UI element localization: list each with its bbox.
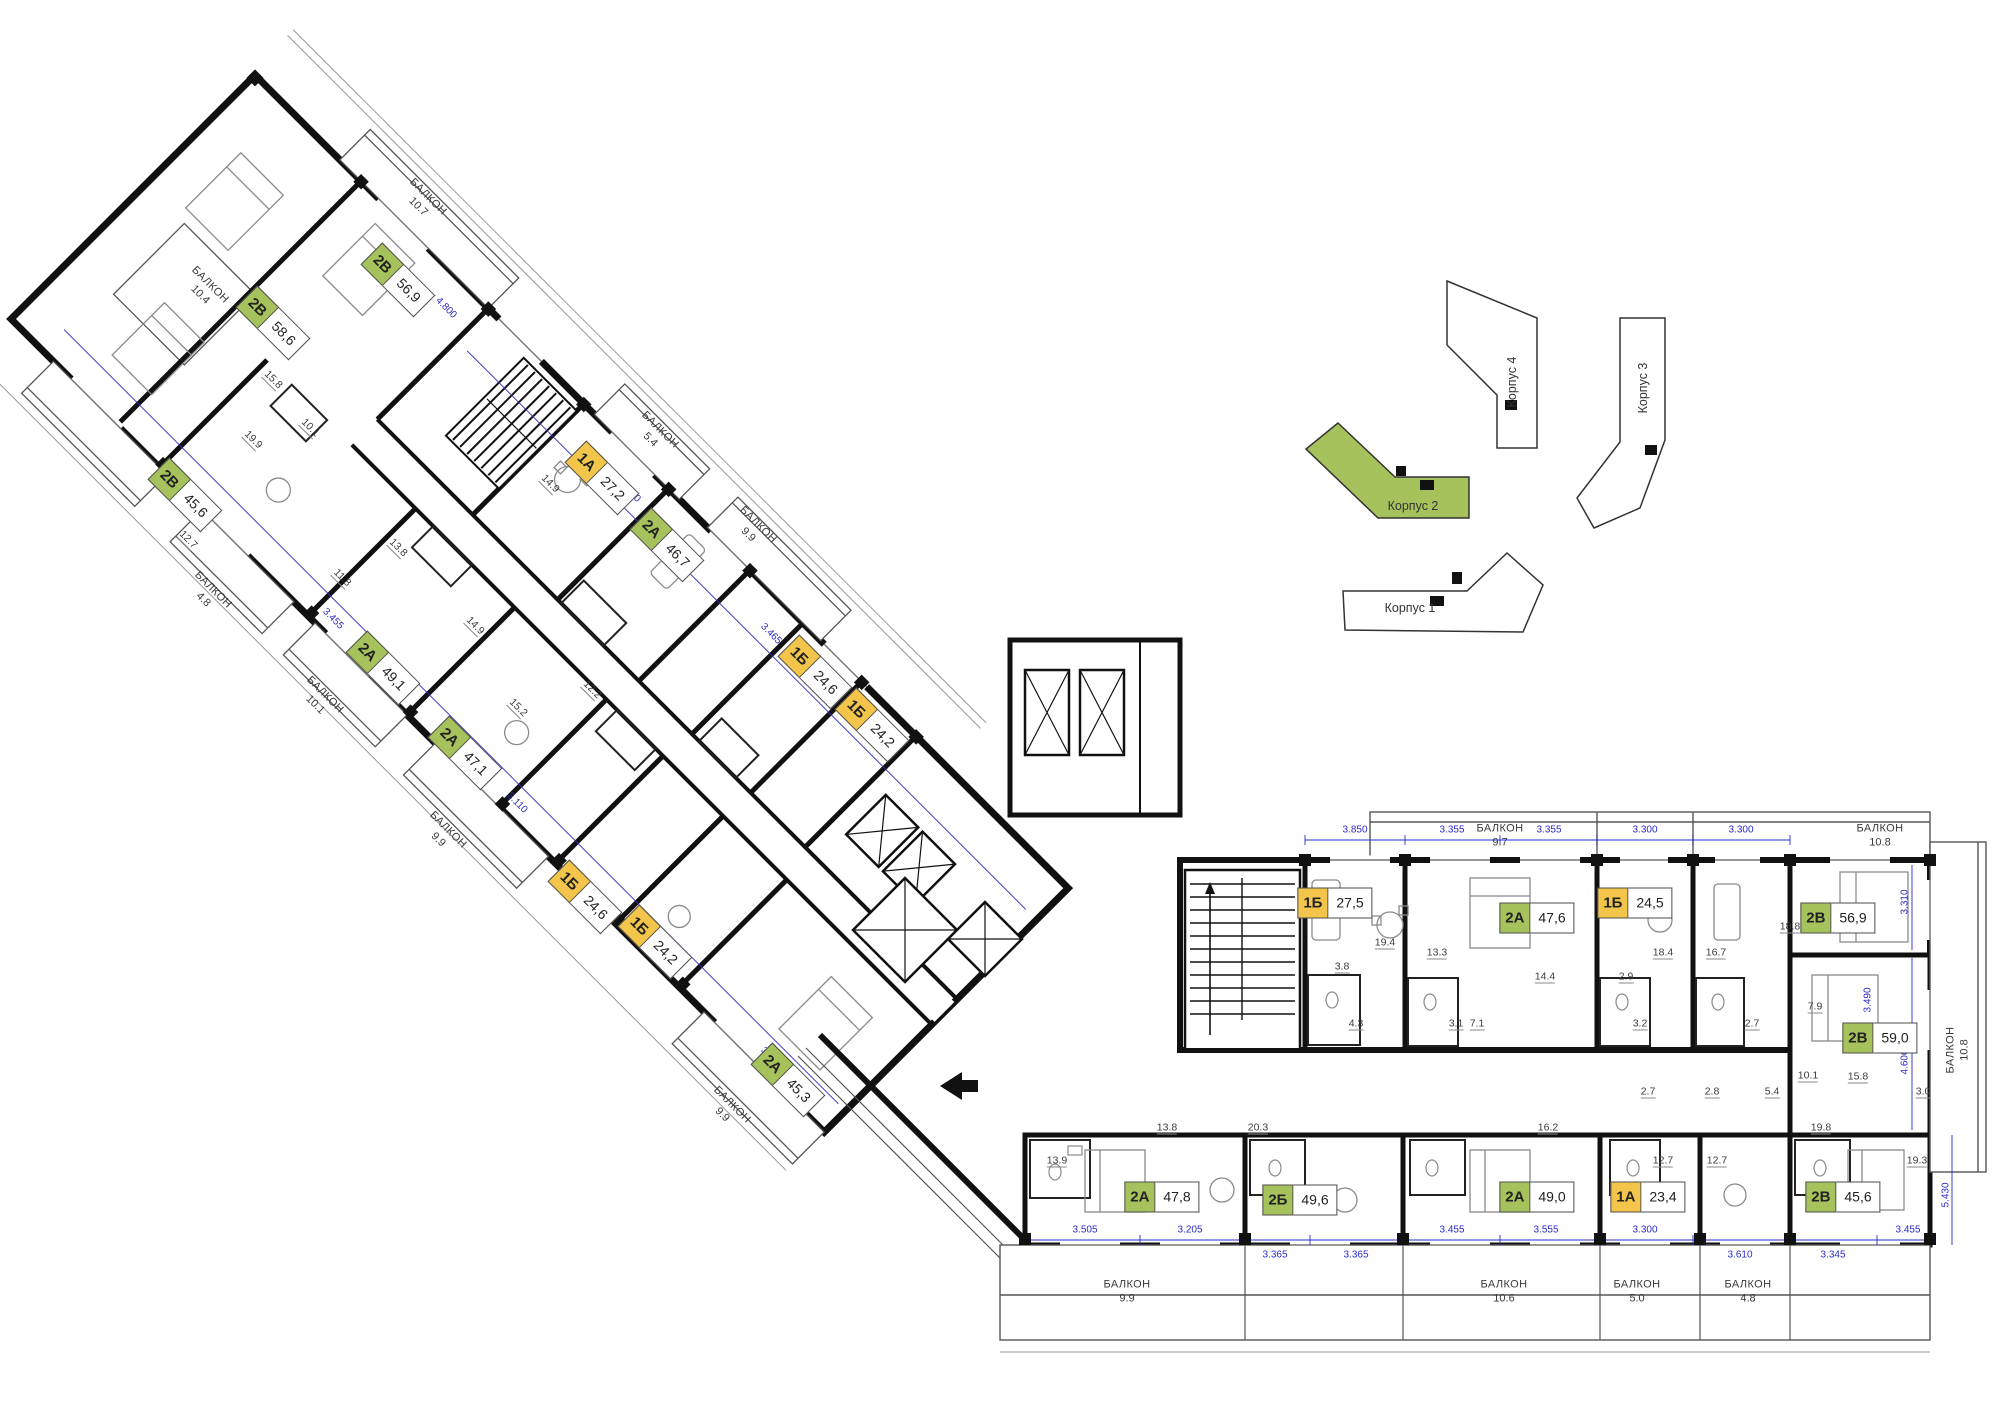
balcony-label: БАЛКОН9.7 xyxy=(1477,822,1524,851)
left-wing xyxy=(0,30,1110,1171)
site-map-label-korpus-4[interactable]: Корпус 4 xyxy=(1505,357,1519,408)
dimension: 3.355 xyxy=(1439,825,1464,836)
floorplan-svg xyxy=(0,0,2000,1415)
balcony-label: БАЛКОН9.9 xyxy=(1104,1278,1151,1307)
korpus-4-shape[interactable] xyxy=(1447,281,1537,448)
room-area: 10.1 xyxy=(1798,1070,1818,1083)
room-area: 16.2 xyxy=(1538,1122,1558,1135)
apartment-label[interactable]: 2В 59,0 xyxy=(1842,1023,1917,1054)
room-area: 2.7 xyxy=(1641,1086,1656,1099)
room-area: 7.1 xyxy=(1470,1018,1485,1031)
room-area: 3.8 xyxy=(1335,961,1350,974)
room-area: 13.8 xyxy=(1157,1122,1177,1135)
dimension: 3.365 xyxy=(1262,1250,1287,1261)
site-map-label-korpus-2[interactable]: Корпус 2 xyxy=(1388,499,1439,513)
room-area: 19.3 xyxy=(1907,1155,1927,1168)
apartment-label[interactable]: 1А 23,4 xyxy=(1610,1182,1685,1213)
dimension: 3.345 xyxy=(1820,1250,1845,1261)
room-area: 18.4 xyxy=(1653,947,1673,960)
dimension: 3.455 xyxy=(1439,1225,1464,1236)
dimension: 3.205 xyxy=(1177,1225,1202,1236)
room-area: 18.8 xyxy=(1780,921,1800,934)
room-area: 13.3 xyxy=(1427,947,1447,960)
room-area: 19.4 xyxy=(1375,937,1395,950)
room-area: 12.7 xyxy=(1653,1155,1673,1168)
apartment-label[interactable]: 1Б 24,5 xyxy=(1597,888,1672,919)
apartment-label[interactable]: 2Б 49,6 xyxy=(1262,1185,1337,1216)
room-area: 16.7 xyxy=(1706,947,1726,960)
apartment-label[interactable]: 2А 47,6 xyxy=(1499,903,1574,934)
site-map-label-korpus-3[interactable]: Корпус 3 xyxy=(1636,363,1650,414)
room-area: 2.7 xyxy=(1745,1018,1760,1031)
dimension: 3.300 xyxy=(1728,825,1753,836)
room-area: 4.3 xyxy=(1349,1018,1364,1031)
site-map-label-korpus-1[interactable]: Корпус 1 xyxy=(1385,601,1436,615)
site-map xyxy=(1306,281,1665,632)
floor-plan-page: 2В 58,6 2В 56,9 2В 45,6 1А 27,2 2А 46,7 … xyxy=(0,0,2000,1415)
dimension: 3.300 xyxy=(1632,825,1657,836)
room-area: 5.4 xyxy=(1765,1086,1780,1099)
korpus-1-shape[interactable] xyxy=(1343,553,1543,632)
apartment-label[interactable]: 1Б 27,5 xyxy=(1297,888,1372,919)
entrance-arrow xyxy=(940,1072,978,1100)
balcony-strip-right xyxy=(1930,842,1986,1172)
apartment-label[interactable]: 2В 45,6 xyxy=(1805,1182,1880,1213)
dimension: 3.310 xyxy=(1900,889,1911,914)
dimension: 3.610 xyxy=(1727,1250,1752,1261)
dimension: 3.455 xyxy=(1895,1225,1920,1236)
room-area: 2.8 xyxy=(1705,1086,1720,1099)
dimension: 3.365 xyxy=(1343,1250,1368,1261)
room-area: 20.3 xyxy=(1248,1122,1268,1135)
dimension: 3.490 xyxy=(1863,987,1874,1012)
room-area: 3.2 xyxy=(1633,1018,1648,1031)
dimension: 3.300 xyxy=(1632,1225,1657,1236)
apartment-label[interactable]: 2А 49,0 xyxy=(1499,1182,1574,1213)
right-wing xyxy=(798,640,1986,1352)
dimension: 3.555 xyxy=(1533,1225,1558,1236)
room-area: 15.8 xyxy=(1848,1071,1868,1084)
room-area: 7.9 xyxy=(1808,1001,1823,1014)
room-area: 13.9 xyxy=(1047,1155,1067,1168)
apartment-label[interactable]: 2А 47,8 xyxy=(1124,1182,1199,1213)
balcony-label: БАЛКОН4.8 xyxy=(1725,1278,1772,1307)
room-area: 14.4 xyxy=(1535,971,1555,984)
room-area: 3.0 xyxy=(1916,1086,1931,1099)
dimension: 3.850 xyxy=(1342,825,1367,836)
balcony-label: БАЛКОН10.8 xyxy=(1944,1027,1973,1074)
dimension: 5.430 xyxy=(1941,1182,1952,1207)
korpus-3-shape[interactable] xyxy=(1577,318,1665,528)
stairs-right-wing xyxy=(1185,870,1300,1050)
balcony-strip-top xyxy=(1370,812,1930,860)
room-area: 2.9 xyxy=(1619,971,1634,984)
balcony-label: БАЛКОН5.0 xyxy=(1614,1278,1661,1307)
balcony-label: БАЛКОН10.6 xyxy=(1481,1278,1528,1307)
dimension: 3.505 xyxy=(1072,1225,1097,1236)
room-area: 12.7 xyxy=(1707,1155,1727,1168)
room-area: 3.1 xyxy=(1449,1018,1464,1031)
room-area: 19.8 xyxy=(1811,1122,1831,1135)
apartment-label[interactable]: 2В 56,9 xyxy=(1800,903,1875,934)
balcony-label: БАЛКОН10.8 xyxy=(1857,822,1904,851)
dimension: 3.355 xyxy=(1536,825,1561,836)
